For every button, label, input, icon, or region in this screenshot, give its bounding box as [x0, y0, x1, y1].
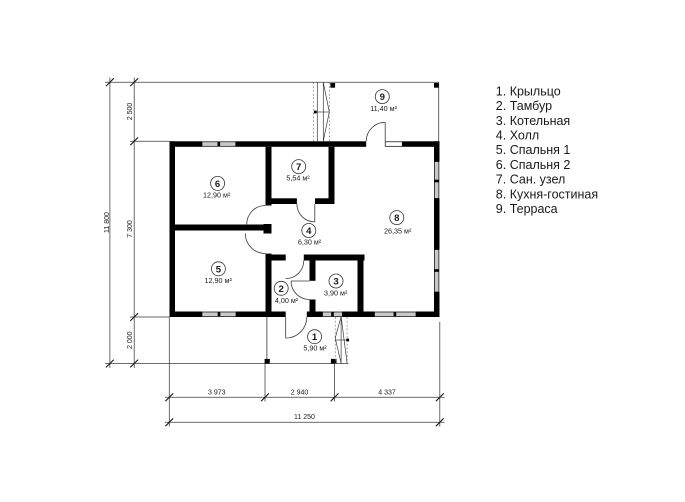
- svg-text:1: 1: [312, 332, 318, 343]
- svg-text:7. Сан. узел: 7. Сан. узел: [496, 173, 566, 187]
- svg-text:5. Спальня 1: 5. Спальня 1: [496, 143, 571, 157]
- svg-text:4,00 м²: 4,00 м²: [275, 296, 299, 305]
- svg-text:2 000: 2 000: [127, 331, 134, 349]
- svg-text:5,90 м²: 5,90 м²: [303, 343, 327, 352]
- svg-text:11 800: 11 800: [104, 212, 111, 233]
- svg-text:26,35 м²: 26,35 м²: [384, 227, 412, 236]
- svg-text:6: 6: [215, 179, 220, 190]
- svg-text:3,90 м²: 3,90 м²: [324, 288, 348, 297]
- svg-text:4: 4: [306, 226, 312, 237]
- svg-text:4. Холл: 4. Холл: [496, 129, 539, 143]
- svg-text:2 500: 2 500: [127, 103, 134, 121]
- svg-text:7: 7: [296, 162, 301, 173]
- svg-text:8. Кухня-гостиная: 8. Кухня-гостиная: [496, 187, 598, 201]
- svg-text:6. Спальня 2: 6. Спальня 2: [496, 158, 571, 172]
- svg-text:4 337: 4 337: [378, 390, 396, 397]
- svg-text:6,30 м²: 6,30 м²: [298, 238, 322, 247]
- svg-text:8: 8: [394, 213, 400, 224]
- svg-text:2. Тамбур: 2. Тамбур: [496, 99, 552, 113]
- svg-text:2: 2: [279, 284, 284, 295]
- svg-text:5: 5: [216, 264, 222, 275]
- svg-text:11,40 м²: 11,40 м²: [370, 104, 397, 113]
- svg-text:12,90 м²: 12,90 м²: [205, 276, 233, 285]
- svg-text:3: 3: [333, 277, 338, 288]
- svg-text:9. Терраса: 9. Терраса: [496, 202, 558, 216]
- svg-text:3. Котельная: 3. Котельная: [496, 114, 570, 128]
- svg-text:7 300: 7 300: [127, 220, 134, 238]
- svg-text:1. Крыльцо: 1. Крыльцо: [496, 84, 561, 98]
- svg-text:9: 9: [380, 92, 385, 103]
- svg-text:5,54 м²: 5,54 м²: [286, 174, 310, 183]
- svg-text:12,90 м²: 12,90 м²: [203, 190, 231, 199]
- svg-text:3 973: 3 973: [208, 390, 226, 397]
- svg-text:11 250: 11 250: [294, 414, 315, 421]
- svg-text:2 940: 2 940: [291, 390, 309, 397]
